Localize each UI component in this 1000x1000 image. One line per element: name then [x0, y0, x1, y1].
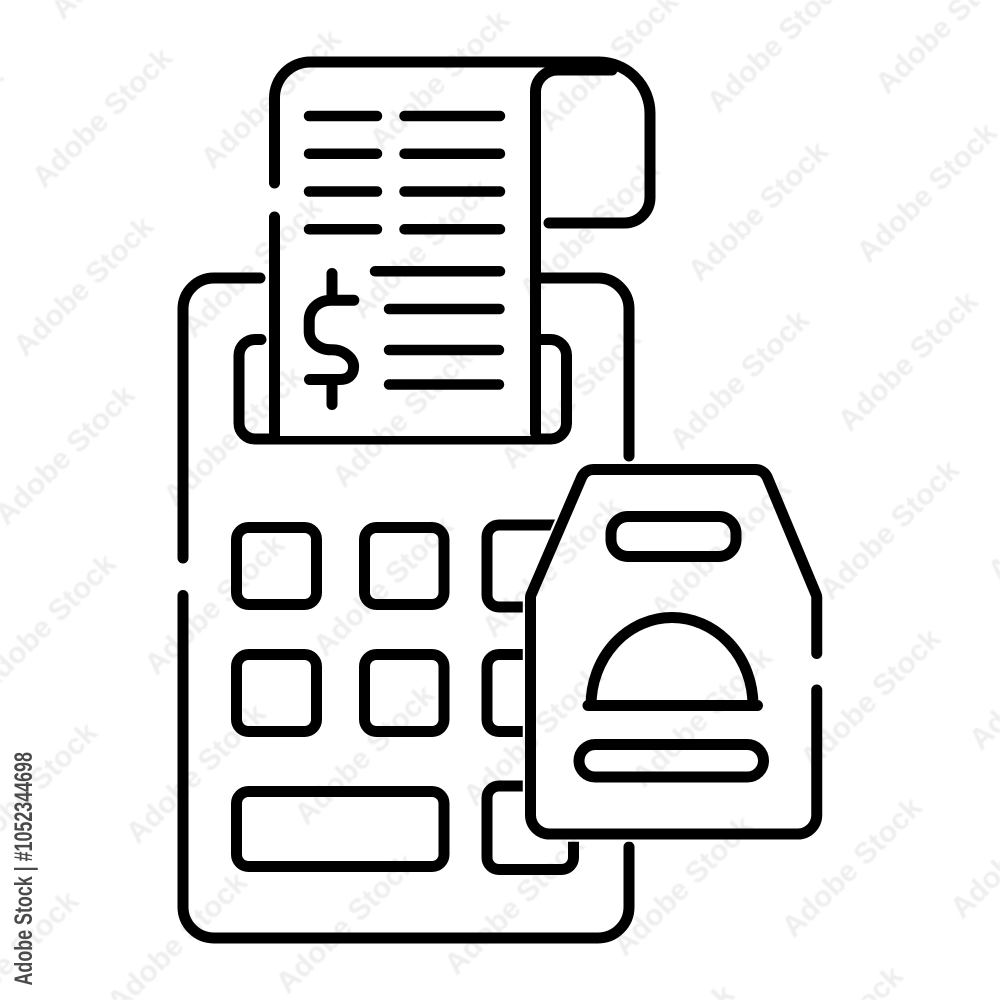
svg-text:Adobe Stock | #1052344698: Adobe Stock | #1052344698: [9, 752, 38, 985]
